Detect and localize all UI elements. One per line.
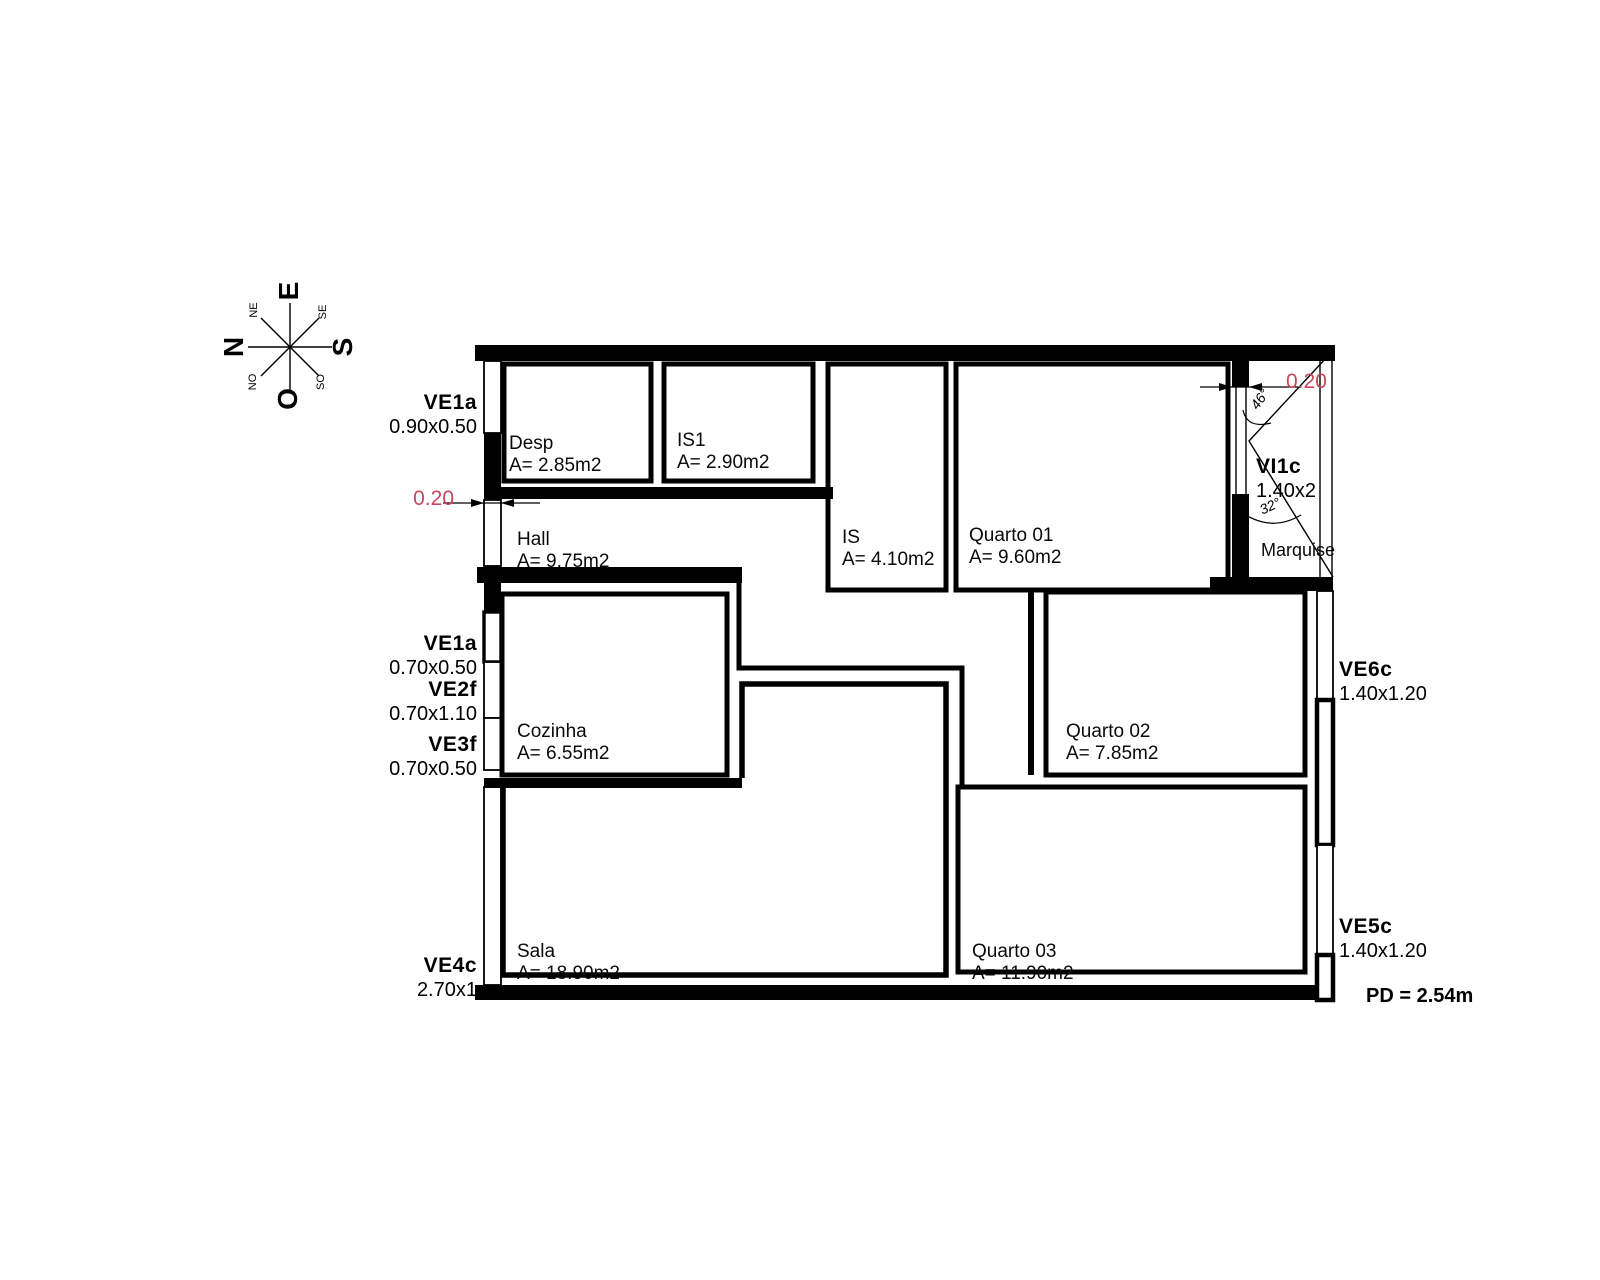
label-room-desp: Desp A= 2.85m2 [509, 433, 601, 477]
entrance-opening [484, 500, 501, 566]
marquise-partition-upper [1232, 361, 1249, 387]
label-room-is1: IS1 A= 2.90m2 [677, 430, 769, 474]
compass-south: S [327, 338, 359, 357]
label-room-quarto02: Quarto 02 A= 7.85m2 [1066, 721, 1158, 765]
compass-east: E [273, 282, 305, 301]
room-outlines [502, 364, 1305, 975]
floor-plan-drawing [0, 0, 1600, 1280]
window-ve1a-090 [484, 361, 501, 433]
label-room-is: IS A= 4.10m2 [842, 527, 934, 571]
window-ve2f [484, 662, 501, 718]
window-symbols [484, 361, 1333, 1000]
label-room-cozinha: Cozinha A= 6.55m2 [517, 721, 609, 765]
label-room-quarto03: Quarto 03 A= 11.90m2 [972, 941, 1074, 985]
wall-bottom [475, 985, 1333, 1000]
label-room-sala: Sala A= 18.90m2 [517, 941, 620, 985]
wall-right-bottom [1317, 955, 1333, 1000]
label-opening-ve6c: VE6c 1.40x1.20 [1339, 658, 1427, 706]
label-opening-ve4c: VE4c 2.70x1 [325, 954, 477, 1002]
hall-top-wall [490, 487, 833, 499]
label-opening-vi1c: VI1c 1.40x2 [1256, 455, 1316, 503]
window-ve5c [1317, 845, 1333, 955]
window-ve3f [484, 718, 501, 770]
label-opening-ve2f: VE2f 0.70x1.10 [325, 678, 477, 726]
floor-plan-sheet: E N S O NE SE NO SO Desp A= 2.85m2 IS1 A… [0, 0, 1600, 1280]
wall-thickness-dim-right: 0.20 [1286, 370, 1327, 394]
compass-northeast: NE [248, 302, 260, 317]
label-opening-ve1a-090: VE1a 0.90x0.50 [325, 391, 477, 439]
label-room-hall: Hall A= 9.75m2 [517, 529, 609, 573]
compass-southeast: SE [317, 305, 329, 320]
wall-thickness-dim-left: 0.20 [394, 487, 454, 511]
marquise-partition-lower [1232, 494, 1249, 591]
ceiling-height-note: PD = 2.54m [1366, 985, 1473, 1008]
label-opening-ve1a-070: VE1a 0.70x0.50 [325, 632, 477, 680]
compass-southwest: SO [315, 374, 327, 390]
wall-right-pier [1317, 700, 1333, 845]
label-room-quarto01: Quarto 01 A= 9.60m2 [969, 525, 1061, 569]
window-ve1a-070 [484, 612, 501, 662]
label-opening-ve5c: VE5c 1.40x1.20 [1339, 915, 1427, 963]
window-ve4c [484, 787, 501, 985]
compass-north: N [218, 337, 250, 357]
wall-top [475, 345, 1335, 361]
outer-walls [475, 345, 1335, 1000]
compass-northwest: NO [247, 374, 259, 391]
sala-top-wall [484, 778, 742, 788]
window-ve6c [1317, 591, 1333, 700]
compass-west: O [272, 388, 304, 410]
label-opening-ve3f: VE3f 0.70x0.50 [325, 733, 477, 781]
label-room-marquise: Marquise [1261, 539, 1335, 561]
